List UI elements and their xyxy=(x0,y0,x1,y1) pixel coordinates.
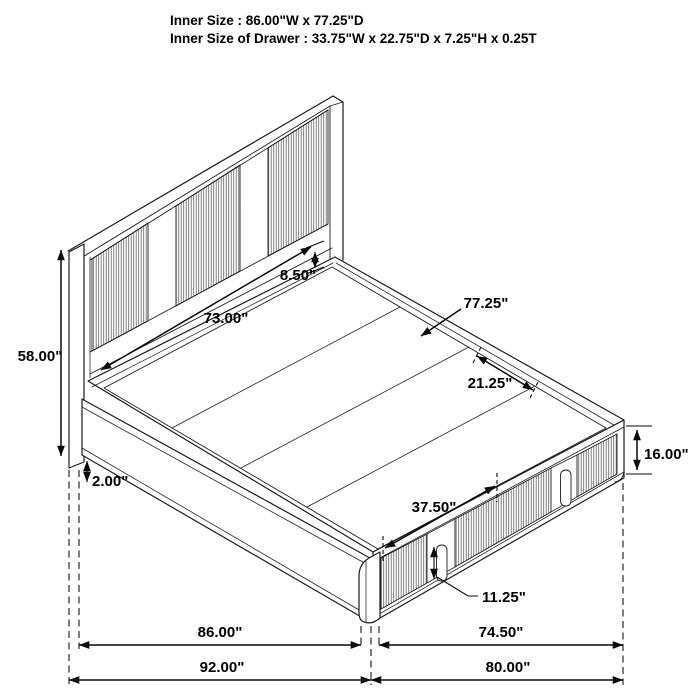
drawer-handle-2 xyxy=(561,470,572,506)
headboard-slat-panel-2 xyxy=(176,165,240,306)
title-drawer-size: Inner Size of Drawer : 33.75"W x 22.75"D… xyxy=(170,31,537,46)
headboard-cap-bevel-inner xyxy=(330,102,343,106)
dim-label-inner-depth: 77.25" xyxy=(464,295,509,312)
dim-label-footboard-overall-width: 80.00" xyxy=(486,659,531,676)
dim-label-drawer-front-height: 11.25" xyxy=(482,589,526,606)
bed-dimension-diagram-page: Inner Size : 86.00"W x 77.25"D Inner Siz… xyxy=(0,0,700,700)
dim-label-deck-section: 21.25" xyxy=(468,375,513,392)
bed-dimension-diagram: Inner Size : 86.00"W x 77.25"D Inner Siz… xyxy=(0,0,700,700)
dim-label-floor-clearance: 2.00" xyxy=(92,473,128,490)
headboard-slat-panel-1 xyxy=(92,223,148,351)
dim-label-footboard-height: 16.00" xyxy=(644,446,689,463)
headboard-slat-panel-3 xyxy=(268,110,328,256)
dim-label-headboard-height: 58.00" xyxy=(18,348,63,365)
headboard-cap-bevel xyxy=(333,96,343,102)
dim-label-inner-width: 86.00" xyxy=(198,624,243,641)
drawer-handle-1 xyxy=(437,545,448,581)
dim-label-headboard-panel-width: 73.00" xyxy=(204,310,249,327)
dim-label-drawer-span: 37.50" xyxy=(412,499,457,516)
dim-label-headboard-rail-gap: 8.50" xyxy=(280,267,316,284)
dim-label-overall-width: 92.00" xyxy=(200,659,245,676)
dim-label-footboard-inner-width: 74.50" xyxy=(479,624,524,641)
title-inner-size: Inner Size : 86.00"W x 77.25"D xyxy=(170,13,364,28)
